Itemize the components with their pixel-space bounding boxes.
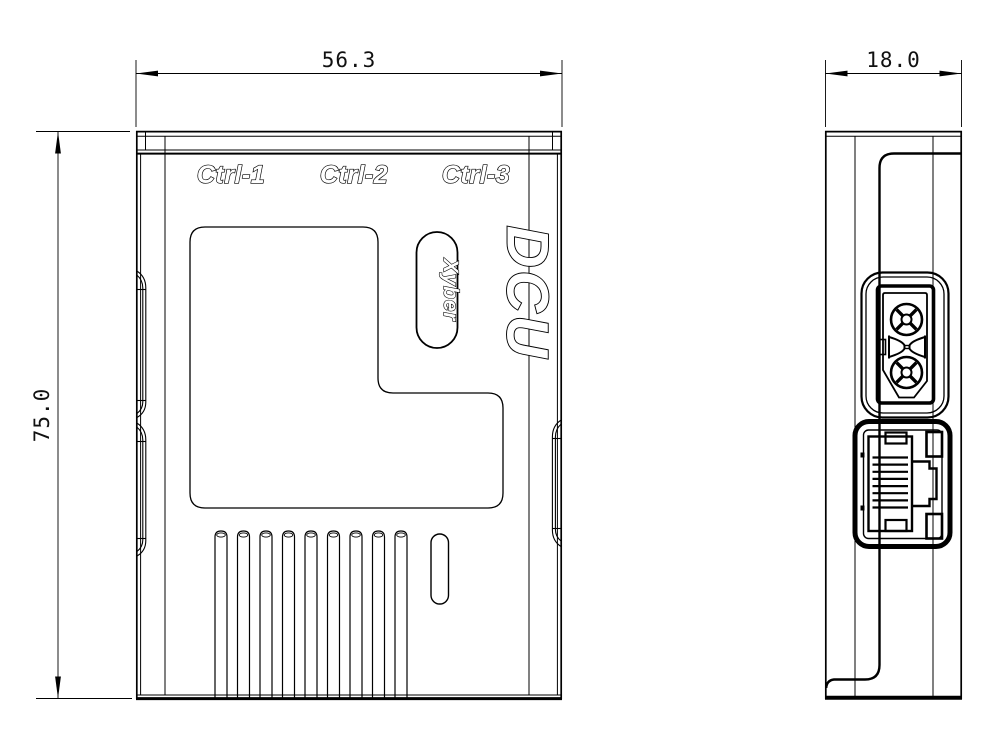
depth-dimension-text: 18.0 — [866, 48, 921, 72]
drawing-background — [0, 0, 1000, 737]
port-label-ctrl1: Ctrl-1 — [197, 161, 265, 189]
brand-name-text: Xyber — [439, 258, 462, 322]
port-label-ctrl2: Ctrl-2 — [320, 161, 388, 189]
port-label-ctrl3: Ctrl-3 — [442, 161, 510, 189]
technical-drawing: 56.3 75.0 — [0, 0, 1000, 737]
height-dimension-text: 75.0 — [30, 388, 54, 443]
product-name-text: DCU — [495, 226, 560, 361]
width-dimension-text: 56.3 — [322, 48, 377, 72]
port-labels: Ctrl-1 Ctrl-2 Ctrl-3 — [197, 161, 510, 189]
